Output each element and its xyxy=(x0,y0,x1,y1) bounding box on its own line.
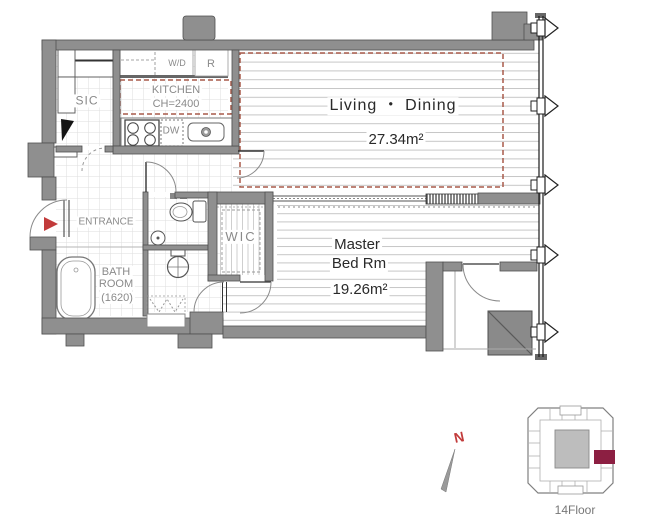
washbasin-icon xyxy=(168,248,189,278)
ac-unit-icon xyxy=(488,311,532,355)
master-bedroom-label-line1: Master xyxy=(332,237,382,254)
floor-plan: SIC W/D R KITCHEN CH=2400 DW ENTRANCE BA… xyxy=(0,0,666,522)
keyplan-bottom-notch xyxy=(558,486,583,494)
master-bedroom-label-line2: Bed Rm xyxy=(330,256,388,273)
master-bedroom-area: 19.26m² xyxy=(330,282,389,299)
entrance-arrow-icon xyxy=(44,217,58,231)
living-dining-area: 27.34m² xyxy=(366,132,425,149)
alcove-door xyxy=(463,264,500,301)
bath-label-line2: ROOM xyxy=(97,278,135,290)
dishwasher-label: DW xyxy=(161,126,182,137)
wic-label: WIC xyxy=(223,230,258,244)
north-needle-icon xyxy=(441,449,455,492)
living-dining-label: Living ・ Dining xyxy=(327,97,458,115)
sliding-door-pocket xyxy=(426,194,478,204)
window-mullion-icon xyxy=(531,322,558,342)
keyplan xyxy=(528,406,615,494)
keyplan-top-notch xyxy=(560,406,581,415)
entrance-label: ENTRANCE xyxy=(76,217,135,228)
sic-label: SIC xyxy=(73,94,100,107)
bathtub-icon xyxy=(57,257,95,320)
bath-label-line1: BATH xyxy=(100,266,133,278)
sliding-partition xyxy=(273,194,478,204)
keyplan-floor-label: 14Floor xyxy=(555,503,596,517)
keyplan-core xyxy=(555,430,589,468)
kitchen-ceiling-label: CH=2400 xyxy=(151,98,202,110)
fridge-label: R xyxy=(205,58,217,70)
kitchen-label: KITCHEN xyxy=(150,84,202,96)
bath-label-line3: (1620) xyxy=(99,292,135,304)
wd-label: W/D xyxy=(166,59,188,69)
wc-sink-icon xyxy=(151,231,165,245)
keyplan-unit-highlight xyxy=(594,450,615,464)
